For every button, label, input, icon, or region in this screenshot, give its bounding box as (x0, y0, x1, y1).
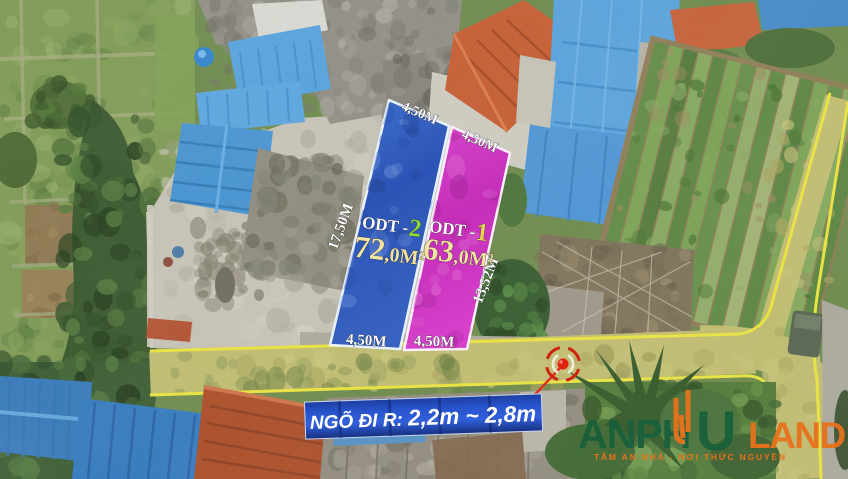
svg-text:ANPH: ANPH (578, 411, 690, 457)
svg-text:LAND: LAND (748, 415, 846, 456)
svg-text:4,50M: 4,50M (414, 333, 455, 350)
svg-text:TÂM AN NHÀ - NƠI THỨC NGUYỀN: TÂM AN NHÀ - NƠI THỨC NGUYỀN (594, 451, 787, 462)
svg-text:4,50M: 4,50M (346, 332, 387, 351)
